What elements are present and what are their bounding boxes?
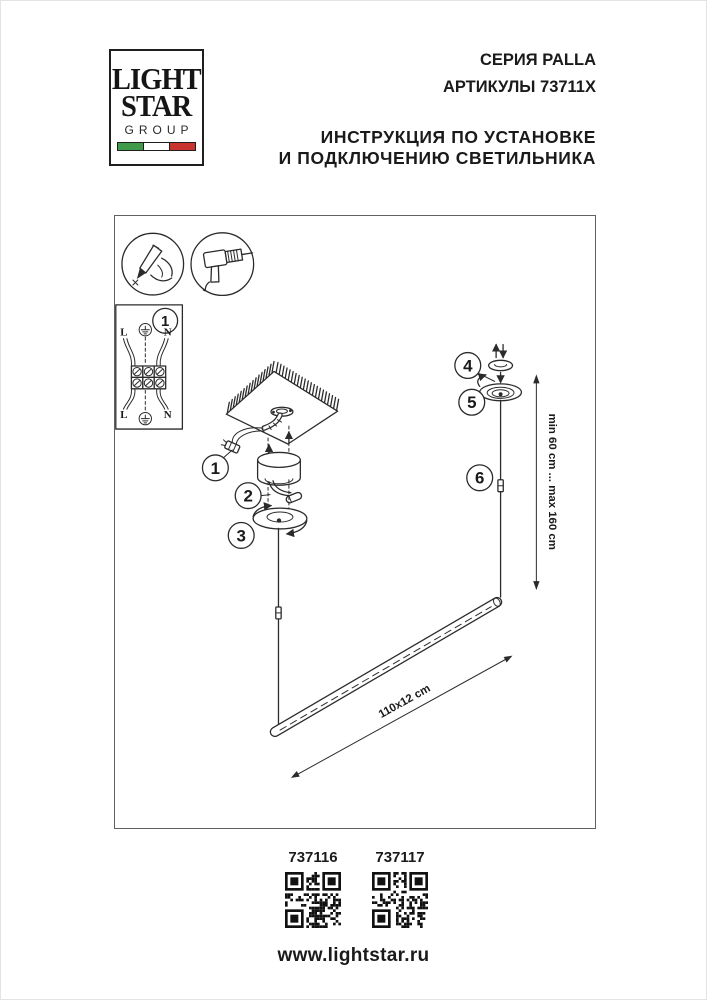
logo-word-group: GROUP	[124, 123, 193, 137]
articles-title: АРТИКУЛЫ 73711X	[279, 78, 596, 97]
wire-label-n-top: N	[164, 327, 172, 339]
qr-label-1: 737116	[284, 849, 342, 866]
installation-diagram: 1 L N L N	[114, 215, 596, 829]
ceiling-cup-right	[489, 345, 513, 383]
instruction-title-line1: ИНСТРУКЦИЯ ПО УСТАНОВКЕ	[279, 127, 596, 148]
qr-code-737117	[372, 872, 428, 928]
drill-icon	[191, 233, 256, 296]
cable-adjuster-right	[498, 480, 503, 492]
terminal-block	[131, 366, 165, 389]
dimension-bar: 110x12 cm	[291, 656, 513, 778]
wiring-diagram: 1 L N L N	[116, 305, 183, 429]
step-marker-5: 5	[467, 393, 476, 412]
instruction-title-line2: И ПОДКЛЮЧЕНИЮ СВЕТИЛЬНИКА	[279, 148, 596, 169]
series-title: СЕРИЯ PALLA	[279, 51, 596, 70]
marking-pencil-icon	[122, 233, 184, 295]
qr-code-737116	[285, 872, 341, 928]
header-text: СЕРИЯ PALLA АРТИКУЛЫ 73711X ИНСТРУКЦИЯ П…	[279, 51, 596, 168]
flag-red-segment	[170, 142, 196, 151]
qr-label-2: 737117	[371, 849, 429, 866]
flag-green-segment	[117, 142, 144, 151]
cable-adjuster-left	[276, 607, 281, 619]
step-marker-4: 4	[463, 356, 473, 375]
strap-hook	[285, 491, 302, 503]
instruction-title: ИНСТРУКЦИЯ ПО УСТАНОВКЕ И ПОДКЛЮЧЕНИЮ СВ…	[279, 127, 596, 168]
flag-white-segment	[144, 142, 170, 151]
lightstar-logo: LIGHT STAR GROUP	[109, 49, 204, 166]
dimension-suspension: min 60 cm ... max 160 cm	[533, 374, 558, 590]
ceiling	[221, 362, 339, 454]
wire-label-l-top: L	[120, 327, 127, 339]
canopy	[258, 452, 303, 503]
suspension-dimension-label: min 60 cm ... max 160 cm	[546, 414, 558, 550]
step-marker-1: 1	[211, 459, 220, 478]
italian-flag-stripe	[117, 142, 197, 151]
ceiling-ring	[253, 506, 307, 534]
instruction-sheet: LIGHT STAR GROUP СЕРИЯ PALLA АРТИКУЛЫ 73…	[0, 0, 707, 1000]
wire-label-l-bottom: L	[120, 409, 127, 421]
wire-label-n-bottom: N	[164, 409, 172, 421]
step-markers: 1 2 3 4 5 6	[202, 353, 494, 549]
step-marker-3: 3	[237, 526, 246, 545]
website-url: www.lightstar.ru	[1, 945, 706, 967]
step-marker-6: 6	[475, 469, 484, 488]
logo-word-star: STAR	[121, 93, 191, 120]
canopy-right	[478, 375, 522, 401]
step-marker-2: 2	[243, 487, 252, 506]
